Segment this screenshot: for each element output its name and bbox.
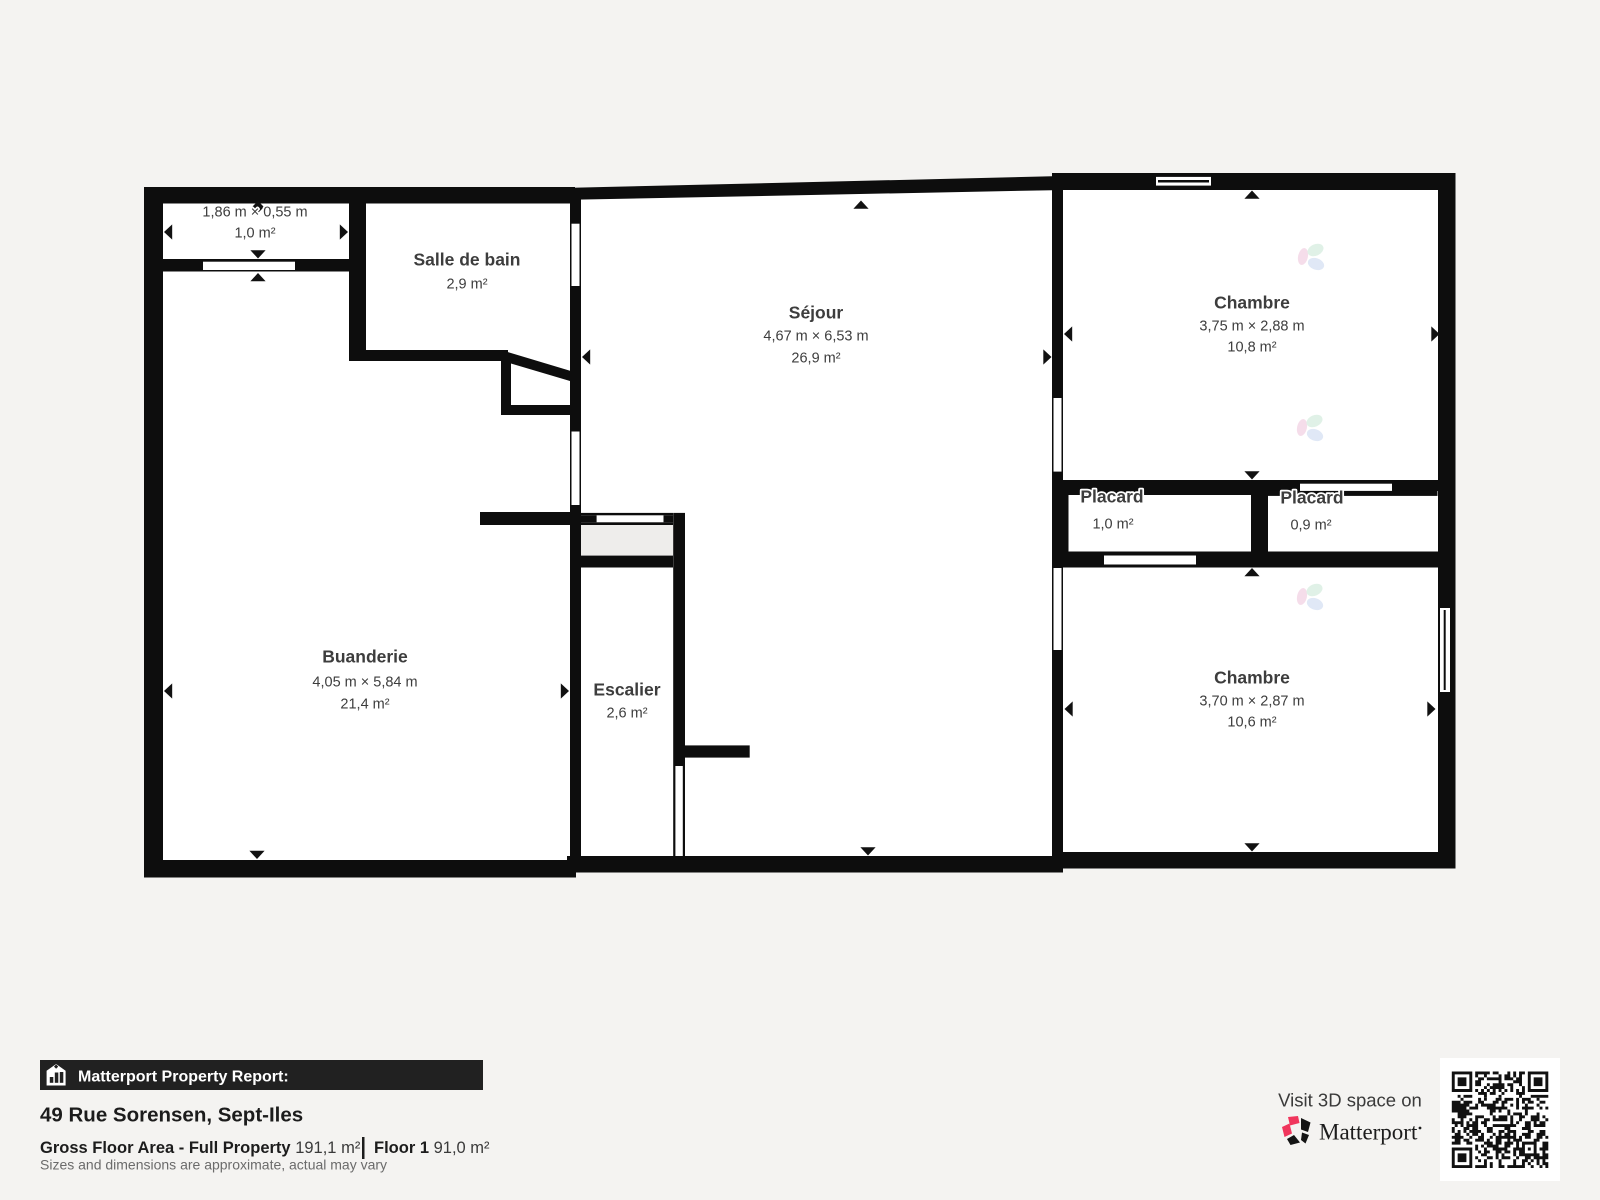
svg-text:1,86 m × 0,55 m: 1,86 m × 0,55 m (202, 205, 307, 221)
svg-text:Placard: Placard (1080, 487, 1143, 507)
svg-text:Visit 3D space on: Visit 3D space on (1278, 1090, 1422, 1111)
svg-text:Buanderie: Buanderie (322, 647, 408, 667)
svg-text:4,05 m × 5,84 m: 4,05 m × 5,84 m (312, 675, 417, 691)
svg-text:Chambre: Chambre (1214, 668, 1290, 688)
svg-text:Gross Floor Area - Full Proper: Gross Floor Area - Full Property 191,1 m… (40, 1139, 361, 1157)
svg-text:21,4 m²: 21,4 m² (340, 697, 389, 713)
svg-text:Matterport Property Report:: Matterport Property Report: (78, 1069, 289, 1086)
svg-text:Matterport: Matterport (1319, 1120, 1418, 1145)
svg-text:26,9 m²: 26,9 m² (791, 351, 840, 367)
svg-text:3,75 m × 2,88 m: 3,75 m × 2,88 m (1199, 319, 1304, 335)
svg-text:49 Rue Sorensen, Sept-Iles: 49 Rue Sorensen, Sept-Iles (40, 1104, 303, 1127)
svg-text:2,9 m²: 2,9 m² (446, 277, 487, 293)
svg-text:1,0 m²: 1,0 m² (234, 226, 275, 242)
svg-text:0,9 m²: 0,9 m² (1290, 518, 1331, 534)
svg-text:Escalier: Escalier (593, 680, 660, 700)
svg-text:10,8 m²: 10,8 m² (1227, 340, 1276, 356)
svg-text:Placard: Placard (1280, 488, 1343, 508)
svg-text:2,6 m²: 2,6 m² (606, 706, 647, 722)
svg-text:4,67 m × 6,53 m: 4,67 m × 6,53 m (763, 329, 868, 345)
svg-text:1,0 m²: 1,0 m² (1092, 517, 1133, 533)
svg-text:Séjour: Séjour (789, 303, 844, 323)
svg-text:Salle de bain: Salle de bain (414, 250, 521, 270)
svg-text:10,6 m²: 10,6 m² (1227, 715, 1276, 731)
svg-text:Sizes and dimensions are appro: Sizes and dimensions are approximate, ac… (40, 1157, 387, 1173)
svg-text:3,70 m × 2,87 m: 3,70 m × 2,87 m (1199, 694, 1304, 710)
svg-text:Floor 1 91,0 m²: Floor 1 91,0 m² (374, 1139, 490, 1157)
svg-text:Chambre: Chambre (1214, 293, 1290, 313)
